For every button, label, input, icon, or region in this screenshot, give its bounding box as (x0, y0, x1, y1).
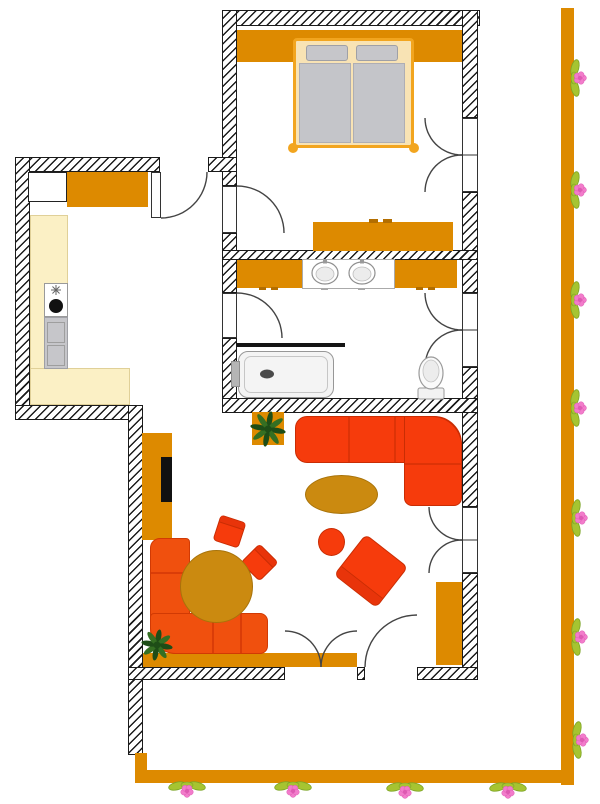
wall-kitchen-top-right (208, 157, 237, 172)
wall-bathroom-bottom (222, 398, 478, 413)
bathtub-inner (244, 356, 328, 393)
bed-foot (409, 143, 419, 153)
bed-mattress (299, 63, 351, 143)
dresser-handle (383, 219, 392, 223)
door-arc-bathroom-left (237, 293, 282, 338)
door-arc-living-right-2 (429, 540, 462, 573)
wall-living-bottom-3 (417, 667, 478, 680)
bed-foot (288, 143, 298, 153)
door-gap-bedroom-right (462, 118, 478, 192)
hall-cabinet (67, 172, 148, 207)
bedroom-dresser (313, 222, 453, 251)
door-arc-bedroom-right-2 (425, 155, 462, 192)
plant-box-top (252, 412, 284, 445)
bed-mattress (353, 63, 405, 143)
living-sideboard (143, 653, 357, 667)
cabinet-handle (259, 287, 266, 290)
door-arc-bedroom-right-1 (425, 118, 462, 155)
cabinet-handle (416, 287, 423, 290)
wall-right-mid2 (462, 367, 478, 507)
door-arc-living-right-1 (429, 507, 462, 540)
terrace-border-bottom (135, 770, 573, 783)
floor-plan (0, 0, 600, 804)
chair-backrest (255, 545, 278, 568)
door-arc-bathroom-right-2 (425, 330, 462, 367)
armchair-backrest (335, 566, 383, 607)
kitchen-window-niche (28, 172, 67, 202)
door-gap-bathroom-left (222, 293, 237, 338)
coffee-table-oval (305, 475, 378, 514)
wall-kitchen-top-left (15, 157, 160, 172)
wall-living-bottom-1 (128, 667, 285, 680)
shower-partition (237, 343, 345, 347)
terrace-border-left (135, 753, 147, 771)
toilet-bowl (419, 357, 443, 389)
bathtub-faucet (231, 361, 240, 387)
chair-backrest (219, 516, 245, 530)
garden-fence (561, 8, 574, 785)
bed-pillow (356, 45, 398, 61)
dishwasher-panel (47, 345, 65, 366)
flower (489, 781, 527, 798)
bench-seam (240, 614, 242, 653)
door-arc-entrance (161, 172, 207, 218)
door-gap-bedroom (222, 186, 237, 233)
sofa-seam (405, 463, 461, 465)
living-cabinet-right (436, 582, 462, 665)
stool (318, 528, 345, 556)
wall-bedroom-top (222, 10, 480, 26)
wall-bedroom-left-lower (222, 233, 237, 293)
sofa-seam (348, 417, 350, 462)
cabinet-handle (428, 287, 435, 290)
flower (386, 781, 424, 798)
cabinet-handle (271, 287, 278, 290)
wall-kitchen-bottom (15, 405, 143, 420)
door-arc-terrace-single (365, 615, 417, 667)
door-gap-living-right (462, 507, 478, 573)
bathroom-cabinet-left (237, 260, 302, 288)
tv-screen (161, 457, 172, 502)
dishwasher-panel (47, 322, 65, 343)
corner-sofa-right (404, 416, 462, 506)
stove (44, 283, 68, 317)
dining-table (180, 550, 253, 623)
entrance-door-leaf (151, 172, 161, 218)
door-gap-bathroom-right (462, 293, 478, 367)
kitchen-counter-horizontal (30, 368, 130, 405)
dresser-handle (369, 219, 378, 223)
sink-vanity (302, 259, 395, 289)
bathroom-cabinet-right (395, 260, 457, 288)
door-arc-bedroom (237, 186, 284, 233)
armchair (334, 534, 409, 608)
wall-living-left (128, 405, 143, 755)
wall-right-lower (462, 573, 478, 680)
bed-pillow (306, 45, 348, 61)
sofa-seam (394, 417, 396, 462)
wall-right-upper (462, 10, 478, 118)
wall-right-mid1 (462, 192, 478, 293)
wall-living-bottom-2 (357, 667, 365, 680)
dining-chair (212, 514, 246, 548)
door-arc-bathroom-right-1 (425, 293, 462, 330)
